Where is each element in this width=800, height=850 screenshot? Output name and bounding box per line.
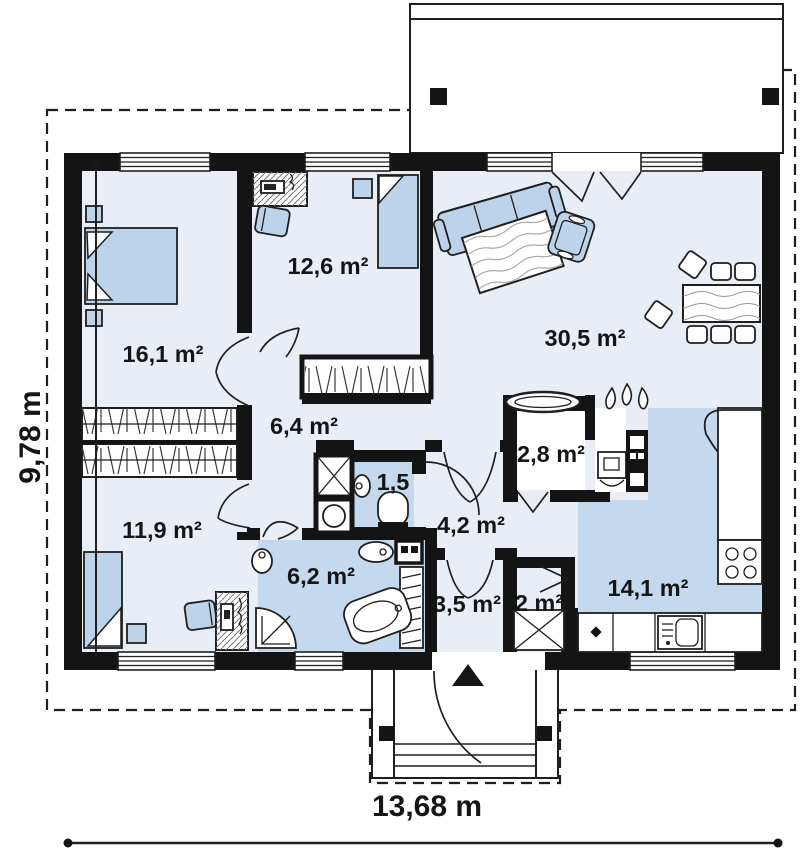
window	[641, 153, 703, 171]
fireplace-flames-icon	[605, 384, 648, 409]
washing-machine	[396, 541, 422, 563]
porch-post	[537, 726, 552, 741]
hall-wardrobes	[82, 408, 237, 477]
nightstand	[86, 206, 102, 222]
room-label-bedroom-1: 16,1 m²	[123, 341, 204, 367]
fireplace	[506, 392, 580, 412]
room-label-hallway: 6,4 m²	[270, 413, 338, 439]
toilet	[378, 492, 408, 530]
window	[630, 652, 735, 670]
desk	[216, 592, 248, 650]
room-label-bathroom: 6,2 m²	[287, 563, 355, 589]
cooktop	[718, 540, 762, 584]
desk	[253, 172, 307, 206]
room-label-corridor: 4,2 m²	[437, 512, 505, 538]
room-label-pantry: 2,8 m²	[517, 441, 585, 467]
room-label-bedroom-3: 11,9 m²	[122, 517, 202, 543]
washbasin	[359, 542, 393, 562]
terrace-post	[762, 88, 779, 105]
window	[305, 153, 390, 171]
dimension-width: 13,68 m	[64, 790, 783, 848]
terrace-door-opening	[552, 153, 641, 171]
porch-post	[379, 726, 394, 741]
terrace	[410, 4, 783, 153]
nightstand	[86, 310, 102, 326]
room-label-living: 30,5 m²	[545, 325, 626, 351]
terrace-post	[430, 88, 447, 105]
room-label-closet: 2 m²	[515, 590, 563, 616]
window	[118, 652, 215, 670]
washbasin	[252, 549, 272, 573]
floor-plan-page: 16,1 m² 12,6 m² 30,5 m² 6,4 m² 1,5 4,2 m…	[0, 0, 800, 850]
room-label-bedroom-2: 12,6 m²	[288, 253, 369, 279]
front-door-opening	[432, 652, 545, 670]
closet-wardrobe	[514, 610, 564, 650]
dining-table	[683, 285, 760, 322]
pillow	[353, 179, 372, 198]
boiler-unit	[316, 499, 352, 533]
built-in-wardrobe	[302, 357, 431, 404]
desk-chair	[254, 205, 290, 237]
room-label-wc: 1,5	[377, 469, 410, 495]
desk-chair	[184, 600, 217, 631]
room-label-kitchen: 14,1 m²	[608, 575, 689, 601]
nightstand	[127, 624, 146, 643]
room-label-entry: 3,5 m²	[433, 591, 501, 617]
ventilation-shaft	[316, 455, 352, 497]
window	[295, 652, 343, 670]
width-dimension-label: 13,68 m	[372, 790, 482, 823]
window	[120, 153, 210, 171]
pantry-interior	[506, 384, 649, 492]
corner-sink	[354, 475, 370, 497]
floor-plan-drawing: 16,1 m² 12,6 m² 30,5 m² 6,4 m² 1,5 4,2 m…	[0, 0, 800, 850]
window	[487, 153, 552, 171]
oven-column	[626, 430, 648, 492]
height-dimension-label: 9,78 m	[14, 390, 47, 483]
entrance-porch	[372, 670, 558, 778]
